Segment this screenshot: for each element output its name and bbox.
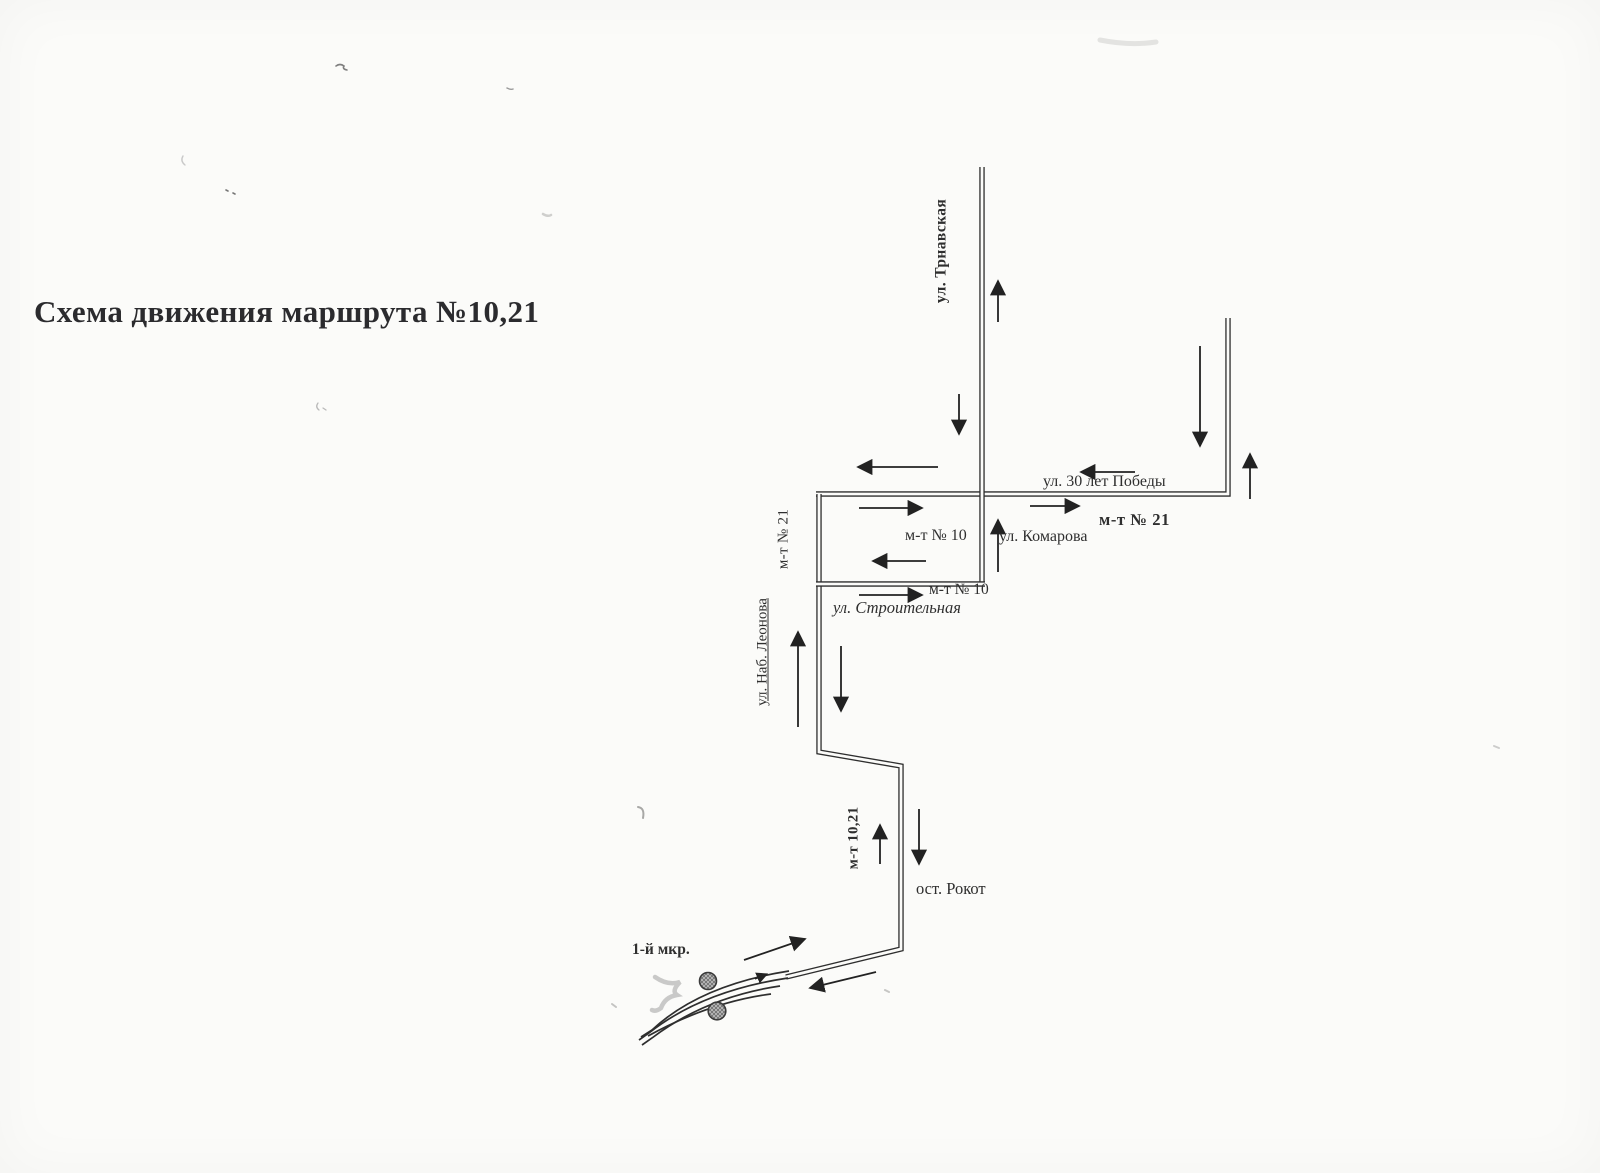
street-label-pobedy: ул. 30 лет Победы: [1043, 474, 1166, 490]
page-title: Схема движения маршрута №10,21: [34, 296, 539, 327]
arrow-left-terminal: [810, 972, 876, 988]
route-label-mt21: м-т № 21: [1099, 512, 1170, 529]
terminal-stop-marker: [700, 973, 717, 990]
route-label-mt10-stroitelnaya: м-т № 10: [929, 582, 989, 598]
street-label-stroitelnaya: ул. Строительная: [833, 600, 961, 617]
stop-label-rokot: ост. Рокот: [916, 881, 986, 898]
arrow-upright-terminal: [744, 939, 805, 960]
arrowhead-on-road: [755, 974, 767, 979]
scanned-page: Схема движения маршрута №10,21 ул. Трнав…: [0, 0, 1600, 1173]
route-label-mt10-loop: м-т № 10: [905, 528, 967, 544]
route-label-mt1021: м-т 10,21: [847, 807, 862, 870]
route-label-mt21-vertical: м-т № 21: [777, 509, 792, 569]
terminal-stop-marker: [708, 1002, 726, 1020]
stop-label-mkr1: 1-й мкр.: [632, 942, 690, 958]
road-leonova-run: [786, 494, 901, 977]
street-label-nab-leonova: ул. Наб. Леонова: [756, 598, 771, 706]
street-label-komarova: ул. Комарова: [999, 529, 1087, 545]
route-map-svg: [0, 0, 1600, 1173]
street-label-trnavskaya: ул. Трнавская: [933, 199, 949, 303]
scan-artifacts: [182, 40, 1499, 1011]
